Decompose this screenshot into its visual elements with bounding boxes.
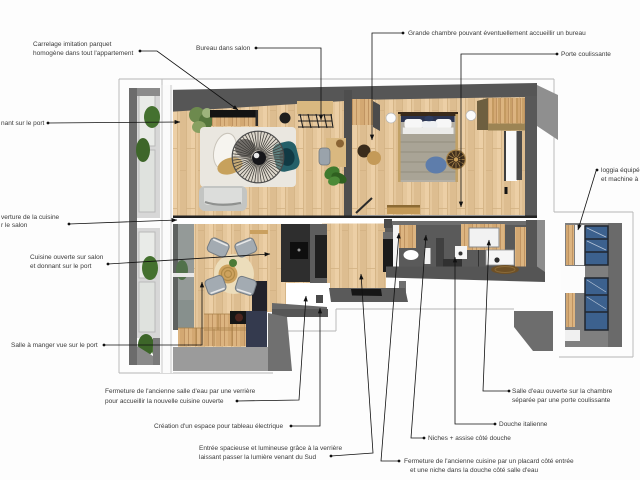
svg-text:loggia équipée: loggia équipée <box>601 167 640 174</box>
svg-text:Niches + assise côté douche: Niches + assise côté douche <box>428 435 511 442</box>
svg-text:Fermeture de l'ancienne cuisin: Fermeture de l'ancienne cuisine par un p… <box>404 458 574 465</box>
svg-text:Douche italienne: Douche italienne <box>499 421 548 428</box>
svg-text:Grande chambre pouvant éventue: Grande chambre pouvant éventuellement ac… <box>408 30 586 37</box>
svg-text:verture de la cuisine: verture de la cuisine <box>1 214 60 221</box>
svg-text:pour accueillir la nouvelle cu: pour accueillir la nouvelle cuisine ouve… <box>105 398 224 405</box>
svg-text:Salle à manger vue sur le port: Salle à manger vue sur le port <box>11 342 98 349</box>
svg-text:Fermeture de l'ancienne salle: Fermeture de l'ancienne salle d'eau par … <box>105 388 256 395</box>
svg-text:Cuisine ouverte sur salon: Cuisine ouverte sur salon <box>30 254 104 261</box>
svg-text:Création d'un espace pour tabl: Création d'un espace pour tableau électr… <box>154 423 284 430</box>
svg-text:et donnant sur le port: et donnant sur le port <box>30 263 92 270</box>
svg-text:et machine à la: et machine à la <box>601 176 640 183</box>
svg-text:Bureau dans salon: Bureau dans salon <box>196 45 251 52</box>
svg-text:Carrelage imitation parquet: Carrelage imitation parquet <box>33 41 112 48</box>
svg-text:nant sur le port: nant sur le port <box>1 120 45 127</box>
svg-text:homogène dans tout l'apparteme: homogène dans tout l'appartement <box>33 50 133 57</box>
svg-text:séparée par une porte coulissa: séparée par une porte coulissante <box>512 397 611 404</box>
svg-text:Entrée spacieuse et lumineuse: Entrée spacieuse et lumineuse grâce à la… <box>199 445 342 452</box>
svg-text:Salle d'eau ouverte sur la cha: Salle d'eau ouverte sur la chambre <box>512 388 613 395</box>
svg-text:r le salon: r le salon <box>1 222 28 229</box>
svg-text:et une niche dans la douche cô: et une niche dans la douche côté salle d… <box>410 467 538 474</box>
svg-text:Porte coulissante: Porte coulissante <box>561 51 611 58</box>
svg-text:laissant passer la lumière ven: laissant passer la lumière venant du Sud <box>199 454 316 461</box>
